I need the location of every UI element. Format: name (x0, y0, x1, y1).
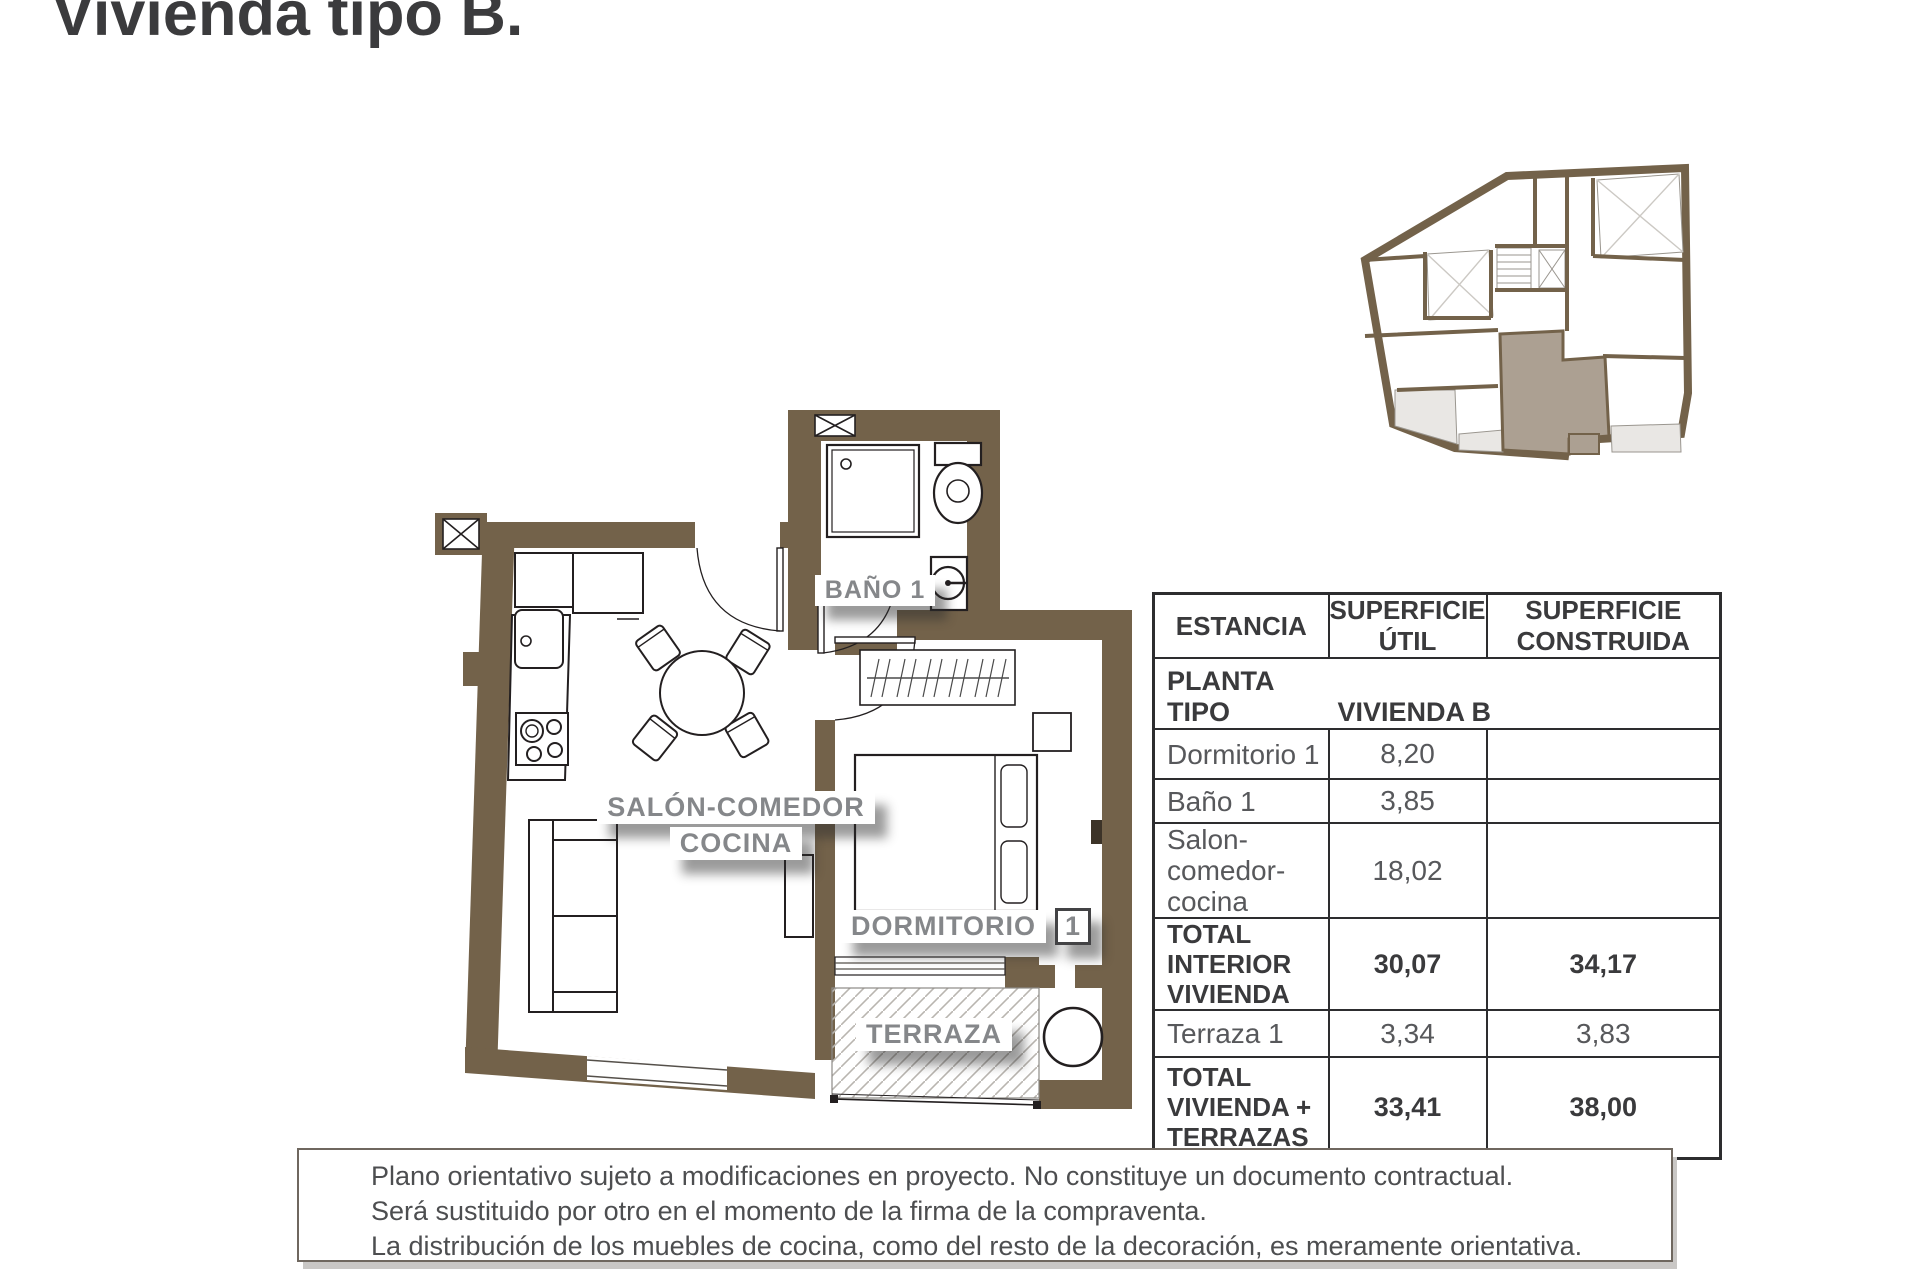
floor-plan: BAÑO 1 SALÓN-COMEDOR COCINA DORMITORIO1 … (365, 325, 1145, 1135)
table-row: Salon-comedor-cocina 18,02 (1154, 823, 1721, 918)
kitchen-fixtures (508, 553, 643, 780)
page-title: Vivienda tipo B. (52, 0, 523, 50)
bedroom-window (835, 957, 1005, 975)
subheader-planta: PLANTA TIPO (1155, 666, 1330, 728)
table-row: Terraza 1 3,34 3,83 (1154, 1010, 1721, 1057)
surfaces-table: ESTANCIA SUPERFICIE ÚTIL SUPERFICIE CONS… (1152, 592, 1722, 1160)
disclaimer-line: La distribución de los muebles de cocina… (371, 1229, 1671, 1264)
header-superficie-construida: SUPERFICIE CONSTRUIDA (1487, 594, 1721, 659)
table-row: Dormitorio 1 8,20 (1154, 729, 1721, 779)
entry-door (697, 548, 783, 631)
tv-bench (785, 855, 813, 937)
header-estancia: ESTANCIA (1154, 594, 1329, 659)
table-subheader-row: PLANTA TIPO VIVIENDA B (1154, 658, 1721, 729)
bathroom-fixtures (827, 443, 982, 610)
sofa (529, 820, 617, 1012)
keyplan-stairs (1497, 248, 1565, 290)
building-key-plan (1335, 138, 1765, 513)
disclaimer-box: Plano orientativo sujeto a modificacione… (297, 1148, 1673, 1262)
table-header-row: ESTANCIA SUPERFICIE ÚTIL SUPERFICIE CONS… (1154, 594, 1721, 659)
dining-table (631, 624, 771, 762)
highlighted-unit-annex (1569, 434, 1599, 454)
header-superficie-util: SUPERFICIE ÚTIL (1329, 594, 1487, 659)
living-window (587, 1056, 727, 1090)
subheader-vivienda: VIVIENDA B (1338, 697, 1492, 728)
table-row: Baño 1 3,85 (1154, 779, 1721, 823)
page: Vivienda tipo B. (0, 0, 1920, 1280)
terrace (830, 988, 1041, 1109)
disclaimer-line: Plano orientativo sujeto a modificacione… (371, 1159, 1671, 1194)
disclaimer-line: Será sustituido por otro en el momento d… (371, 1194, 1671, 1229)
bed (855, 713, 1071, 911)
closet (860, 650, 1015, 705)
floor-plan-drawing (365, 325, 1145, 1135)
wall-detail (1091, 820, 1102, 844)
table-row-total-vivienda: TOTAL VIVIENDA + TERRAZAS 33,41 38,00 (1154, 1057, 1721, 1158)
table-row-total-interior: TOTAL INTERIOR VIVIENDA 30,07 34,17 (1154, 918, 1721, 1010)
